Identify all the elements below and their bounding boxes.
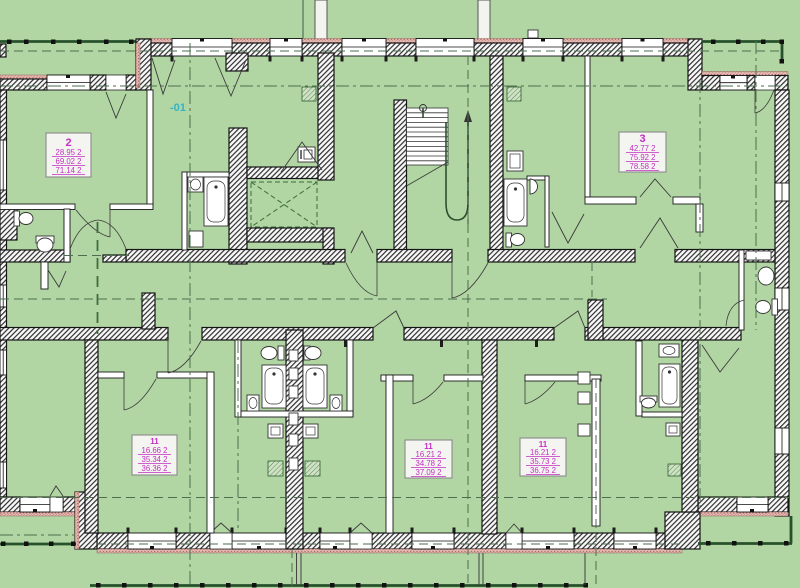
svg-text:36.36 2: 36.36 2 [141, 464, 167, 473]
svg-text:16.21 2: 16.21 2 [415, 450, 441, 459]
svg-text:11: 11 [150, 437, 159, 446]
svg-text:36.75 2: 36.75 2 [530, 466, 556, 475]
svg-text:16.21 2: 16.21 2 [530, 448, 556, 457]
svg-text:35.34 2: 35.34 2 [141, 455, 167, 464]
svg-text:42.77 2: 42.77 2 [629, 144, 655, 153]
svg-text:16.66 2: 16.66 2 [141, 446, 167, 455]
svg-text:28.95 2: 28.95 2 [55, 148, 81, 157]
svg-text:69.02 2: 69.02 2 [55, 157, 81, 166]
svg-text:75.92 2: 75.92 2 [629, 153, 655, 162]
svg-text:-01: -01 [170, 102, 186, 114]
svg-text:34.78 2: 34.78 2 [415, 459, 441, 468]
svg-text:37.09 2: 37.09 2 [415, 468, 441, 477]
svg-text:71.14 2: 71.14 2 [55, 166, 81, 175]
svg-text:35.73 2: 35.73 2 [530, 457, 556, 466]
svg-text:78.58 2: 78.58 2 [629, 162, 655, 171]
